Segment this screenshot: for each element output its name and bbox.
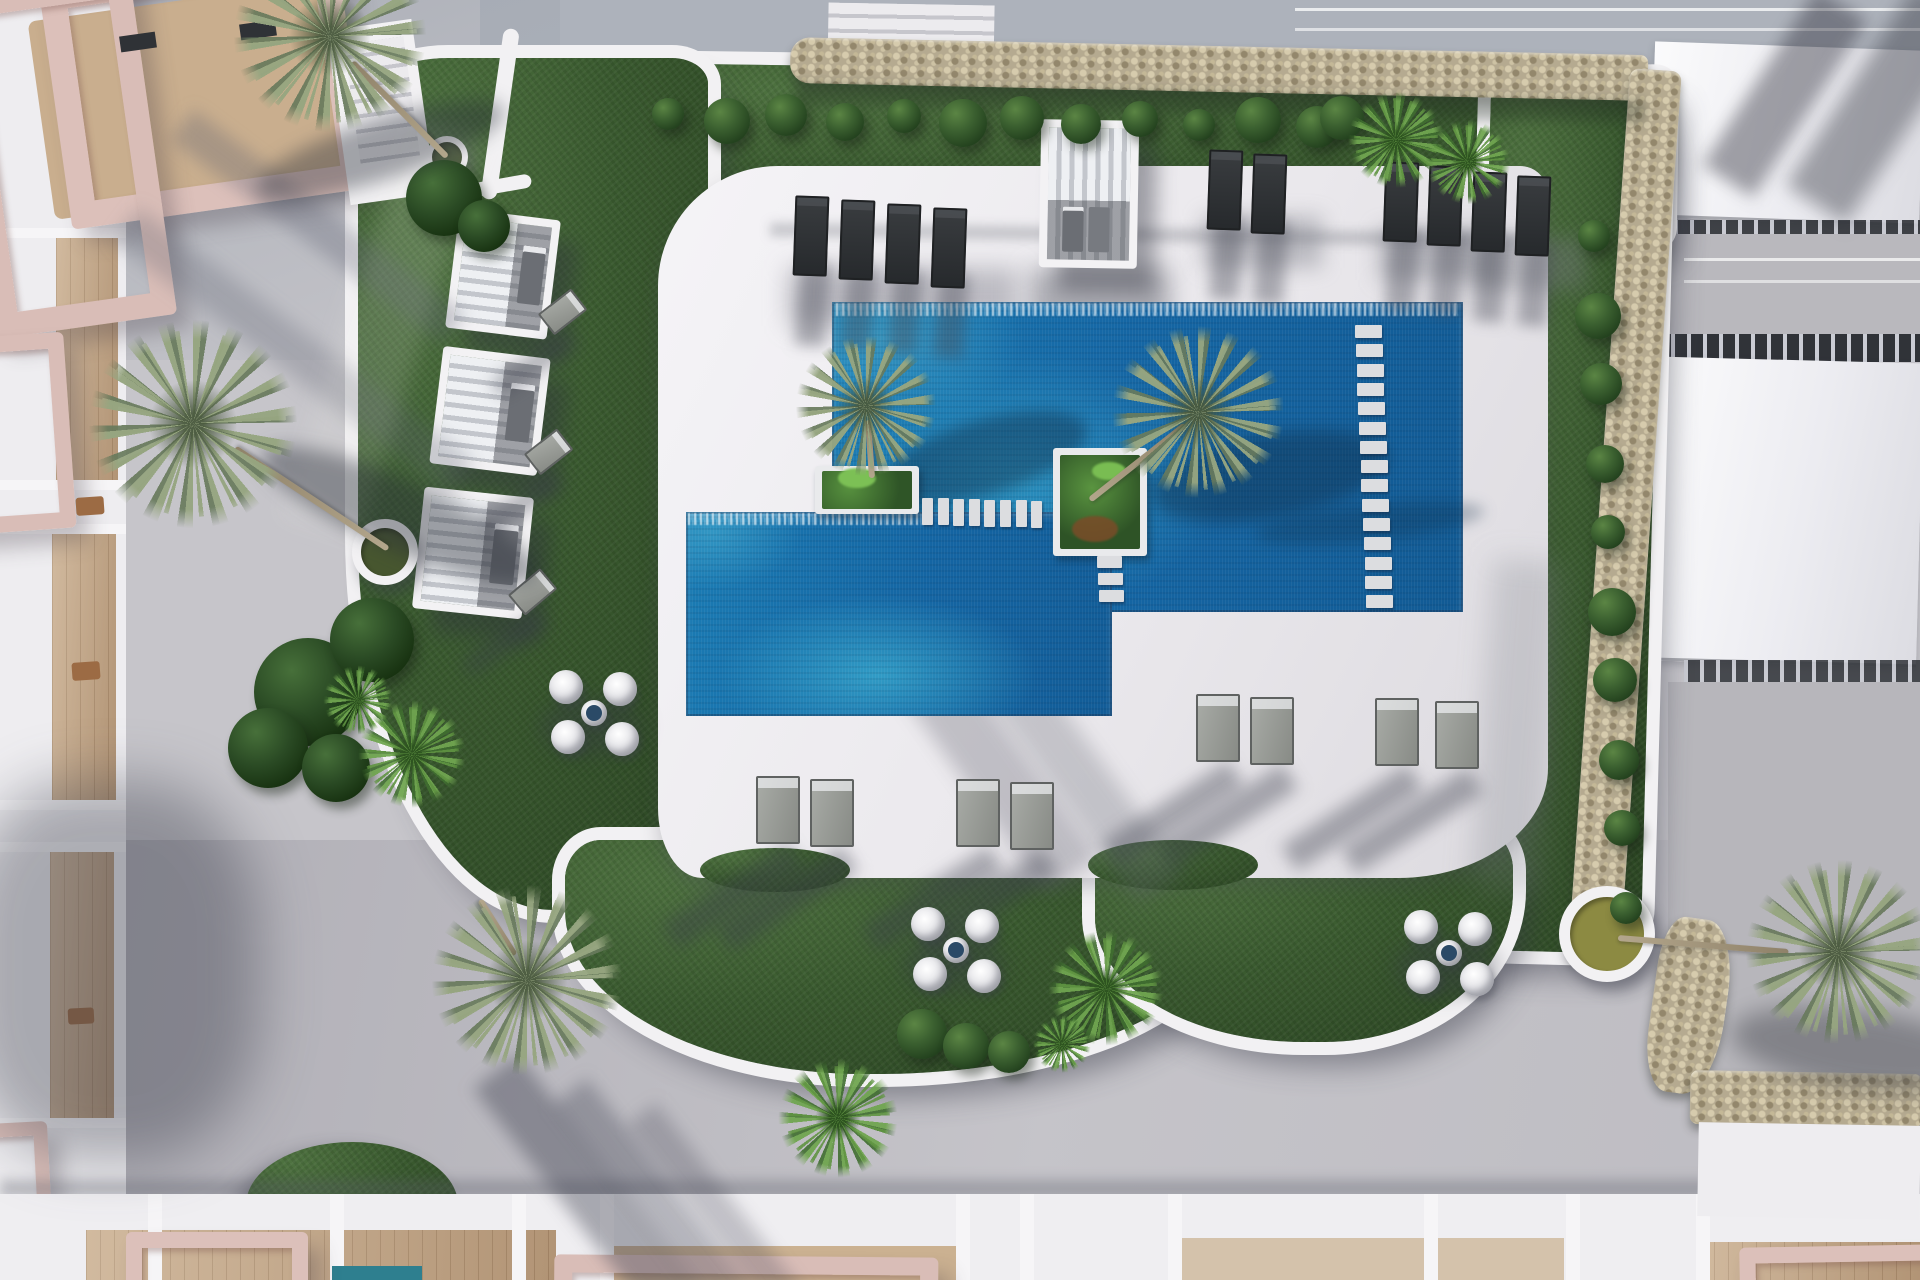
south-fan-palm-3 [1032,1014,1092,1074]
hedge-row-right-bush-6 [1588,588,1636,636]
palm-left-ground-shadow [249,422,552,608]
hedge-row-right-bush-10 [1610,892,1642,924]
hedge-row-right-bush-8 [1599,740,1639,780]
hedge-row-right-bush-2 [1575,293,1621,339]
topleft-bush-2 [458,200,510,252]
hedge-row-top-bush-2 [704,98,750,144]
hedge-row-top-bush-6 [939,99,987,147]
hedge-row-right-bush-1 [1578,220,1610,252]
hedge-row-top-bush-5 [887,99,921,133]
hedge-row-right-bush-3 [1580,363,1622,405]
left-tree-3 [228,708,308,788]
hedge-row-top-bush-4 [826,103,864,141]
resort-pool-aerial-render [0,0,1920,1280]
south-fan-palm-1 [776,1056,900,1180]
palm-pool-island-2-canopy [1112,326,1284,498]
left-fan-palm-2 [322,664,394,736]
hedge-row-top-bush-8 [1061,104,1101,144]
hedge-row-top-bush-1 [652,98,684,130]
south-bush-2 [943,1023,989,1069]
hedge-row-top-bush-7 [1000,96,1044,140]
hedge-row-right-bush-4 [1586,445,1624,483]
corner-fan-palm-2 [1424,118,1512,206]
layer-flora [0,0,1920,1280]
south-bush-1 [897,1009,947,1059]
hedge-row-right-bush-7 [1593,658,1637,702]
palm-south-plaza-canopy [432,885,622,1075]
hedge-row-right-bush-9 [1604,810,1640,846]
hedge-row-top-bush-10 [1183,109,1215,141]
hedge-row-right-bush-5 [1591,515,1625,549]
hedge-row-top-bush-9 [1122,101,1158,137]
palm-pool-island-1-canopy [796,336,936,476]
south-bush-3 [988,1031,1030,1073]
palm-left-canopy [89,320,297,528]
hedge-row-top-bush-3 [765,94,807,136]
hedge-row-top-bush-11 [1235,97,1281,143]
palm-right-court-canopy [1746,860,1920,1044]
